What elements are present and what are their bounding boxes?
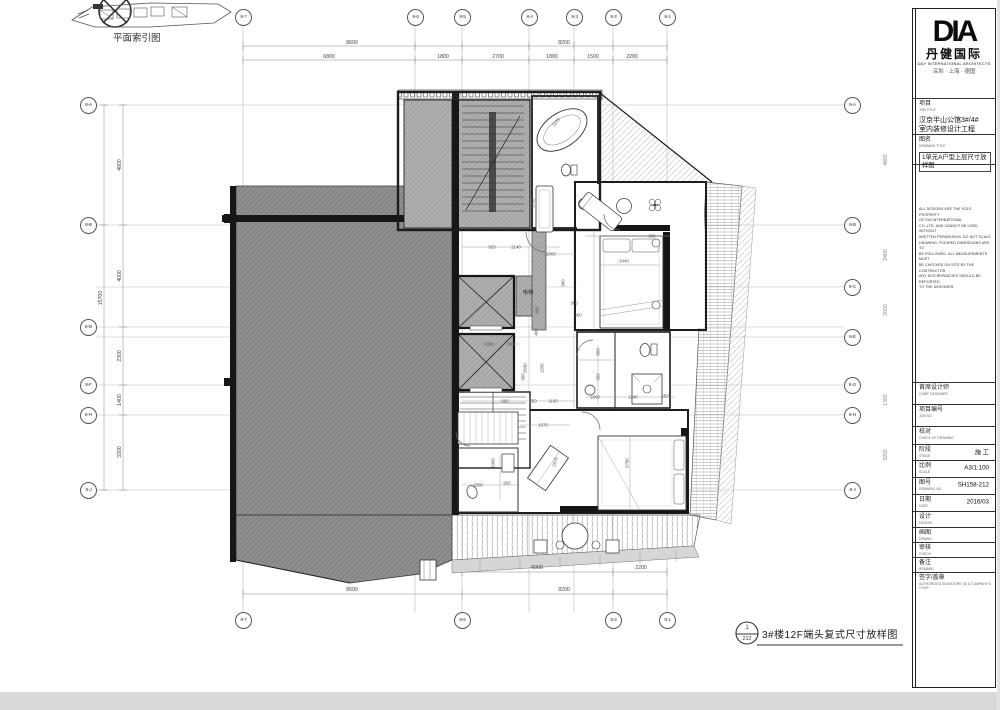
field-row: 画图DRAWN — [913, 528, 995, 543]
grid-bubble: 8-3 — [566, 9, 583, 26]
job-line1: 汉京半山公馆3#/4# — [919, 116, 991, 125]
grid-bubble: 8-A — [80, 97, 97, 114]
dim-label: 1900 — [491, 458, 496, 468]
lamp — [652, 301, 660, 309]
dim-label: 2700 — [492, 54, 504, 60]
dim-label: 1860 — [590, 395, 600, 400]
dim-label: 960 — [561, 279, 566, 286]
grid-bubble: 8-6 — [407, 9, 424, 26]
dim-label: 1970 — [538, 423, 548, 428]
disclaimer-line: ALL DESIGNS ARE THE SOLE PROPERTY — [919, 207, 991, 218]
dim-label: 8200 — [558, 40, 570, 46]
grid-bubble: 8-2 — [605, 612, 622, 629]
dim-label: 950 — [521, 373, 526, 380]
grid-bubble: 8-E — [844, 329, 861, 346]
field-row: 日期DATE2016/03 — [913, 495, 995, 512]
dim-label: 950 — [596, 373, 601, 380]
job-sub: JOB TITLE — [919, 108, 991, 113]
field-row: 审核CHECK — [913, 543, 995, 558]
dim-label: 4800 — [117, 159, 123, 171]
patio-stool — [606, 540, 619, 553]
field-row: 比例SCALEA3/1:100 — [913, 461, 995, 478]
grid-bubble: 8-J — [844, 482, 861, 499]
dim-label: 8600 — [346, 40, 358, 46]
logo-area: DIA 丹健国际 D&Y INTERNATIONAL ARCHITECTS 深圳… — [913, 9, 995, 99]
name-label: 图名 — [919, 137, 991, 144]
corridor-wall-hatch — [532, 230, 546, 330]
disclaimer-line: WRITTEN PERMISSION. DO NOT SCALE — [919, 235, 991, 241]
grid-bubble: 8-J — [80, 482, 97, 499]
disclaimer-line: BE FOLLOWED. ALL MEASUREMENTS MUST — [919, 252, 991, 263]
dim-label: 800 — [648, 234, 655, 239]
job-label: 项目 — [919, 101, 991, 108]
field-row: 签字/盖章AUTHORIZED SIGNATURE (S) & COMPANY'… — [913, 573, 995, 683]
dim-label: 920 — [488, 245, 495, 250]
dim-label: 1730 — [531, 198, 536, 208]
elevator-label: 电梯 — [522, 288, 533, 296]
dim-label: 2140 — [511, 245, 521, 250]
dim-label: 8600 — [346, 587, 358, 593]
dim-label: 400 — [534, 328, 539, 335]
planter — [420, 560, 436, 580]
dim-label: 15700 — [98, 291, 104, 305]
name-sub: DRAWING TITLE — [919, 144, 991, 149]
job-title-section: 项目 JOB TITLE 汉京半山公馆3#/4# 室内装修设计工程 — [913, 99, 995, 135]
grid-bubble: 8-A — [844, 97, 861, 114]
dim-label: 4000 — [117, 270, 123, 282]
dim-label: 2200 — [635, 565, 647, 571]
dim-label: 850 — [535, 306, 540, 313]
dim-label: 550 — [661, 394, 668, 399]
toilet — [640, 344, 650, 357]
field-row: 校对CHECK OF DRAWING — [913, 427, 995, 445]
sheet-number: 212 — [743, 636, 752, 642]
dim-label: 850 — [529, 399, 536, 404]
dim-label: 1300 — [883, 394, 889, 406]
dim-label: 1800 — [437, 54, 449, 60]
title-block: DIA 丹健国际 D&Y INTERNATIONAL ARCHITECTS 深圳… — [912, 8, 996, 688]
field-row: 设计DESIGN — [913, 512, 995, 528]
plan-index-caption: 平面索引图 — [113, 30, 161, 44]
dim-label: 850 — [596, 348, 601, 355]
grid-bubble: 8-7 — [235, 612, 252, 629]
dim-label: 2400 — [883, 249, 889, 261]
field-row: 备注REMARK — [913, 558, 995, 573]
dim-label: 2090 — [523, 363, 528, 373]
dim-label: 1000 — [546, 252, 556, 257]
name-value: 1单元A户型上层尺寸放样图 — [919, 152, 991, 172]
dim-label: 360 — [570, 301, 577, 306]
grid-bubble: 8-5 — [454, 9, 471, 26]
north-arrow-icon — [99, 0, 131, 27]
void-slab-area — [236, 186, 452, 515]
grid-bubble: 8-B — [844, 217, 861, 234]
dim-label: 8200 — [558, 587, 570, 593]
dim-label: 4800 — [883, 154, 889, 166]
grid-bubble: 8-5 — [454, 612, 471, 629]
page-edge-bottom — [0, 692, 1000, 710]
disclaimer-line: DRAWING. FIGURED DIMENSIONS ARE TO — [919, 241, 991, 252]
dim-label: 1340 — [628, 395, 638, 400]
disclaimer: ALL DESIGNS ARE THE SOLE PROPERTY OF DIA… — [913, 165, 995, 383]
drawing-name-section: 图名 DRAWING TITLE 1单元A户型上层尺寸放样图 — [913, 135, 995, 165]
brand-cities: 深圳 · 上海 · 德国 — [913, 67, 995, 77]
field-row: 阶段STAGE施 工 — [913, 445, 995, 461]
grid-bubble: 8-1 — [659, 612, 676, 629]
round-table — [617, 199, 632, 214]
drawing-title: 3#楼12F端头复式尺寸放样图 — [762, 626, 898, 641]
dim-label: 800 — [507, 342, 514, 347]
plan-index-sketch — [72, 3, 231, 27]
brand-logo: DIA — [913, 17, 995, 47]
lamp — [652, 239, 660, 247]
dim-label: 2200 — [626, 54, 638, 60]
dim-label: 1090 — [484, 342, 494, 347]
dim-label: 1800 — [546, 54, 558, 60]
grid-bubble: 8-F — [80, 377, 97, 394]
detail-number: 1 — [745, 625, 748, 631]
field-row: 首席设计师CHIEF DESIGNER — [913, 383, 995, 405]
dim-label: 2000 — [883, 304, 889, 316]
disclaimer-line: TO THE DESIGNER. — [919, 285, 991, 291]
disclaimer-line: BE CHECKED ON SITE BY THE CONTRACTOR. — [919, 263, 991, 274]
dim-label: 3200 — [883, 449, 889, 461]
dim-label: 2250 — [540, 363, 545, 373]
job-line2: 室内装修设计工程 — [919, 125, 991, 134]
grid-bubble: 8-H — [80, 407, 97, 424]
drawing-sheet: 8-7 8-6 8-5 8-4 8-3 8-2 8-1 8-7 8-5 8-2 … — [0, 0, 1000, 710]
grid-bubble: 8-2 — [605, 9, 622, 26]
dim-label: 1400 — [117, 394, 123, 406]
dim-label: 5780 — [625, 458, 630, 468]
grid-bubble: 8-H — [844, 407, 861, 424]
sink — [585, 385, 595, 395]
dim-label: 3440 — [619, 259, 629, 264]
dim-label: 1500 — [587, 54, 599, 60]
grid-bubble: 8-C — [844, 279, 861, 296]
dim-label: 2300 — [117, 350, 123, 362]
grid-bubble: 8-7 — [235, 9, 252, 26]
field-row: 图号DRAWING NO.SH158-212 — [913, 478, 995, 495]
dim-label: 1100 — [548, 399, 557, 404]
dim-label: 600 — [501, 399, 508, 404]
dim-label: 3200 — [117, 446, 123, 458]
sink — [502, 454, 514, 472]
dim-label: 560 — [574, 313, 581, 318]
toilet — [562, 164, 571, 176]
patio-table — [562, 523, 588, 549]
disclaimer-line: CO.,LTD. AND CANNOT BE USED WITHOUT — [919, 224, 991, 235]
disclaimer-line: ANY DISCREPANCIES SHOULD BE REPORTED — [919, 274, 991, 285]
patio-stool — [534, 540, 547, 553]
dim-label: 900 — [503, 481, 510, 486]
dim-label: 6800 — [323, 54, 335, 60]
field-row: 项目编号JOB NO. — [913, 405, 995, 427]
dim-label: 1500 — [473, 483, 483, 488]
grid-bubble: 8-G — [844, 377, 861, 394]
grid-bubble: 8-4 — [521, 9, 538, 26]
room-top-left — [404, 100, 452, 228]
grid-bubble: 8-1 — [659, 9, 676, 26]
grid-bubble: 8-D — [80, 319, 97, 336]
brand-cn: 丹健国际 — [913, 47, 995, 61]
elevator-shafts — [458, 276, 514, 392]
dim-label: 6000 — [531, 565, 543, 571]
grid-bubble: 8-B — [80, 217, 97, 234]
